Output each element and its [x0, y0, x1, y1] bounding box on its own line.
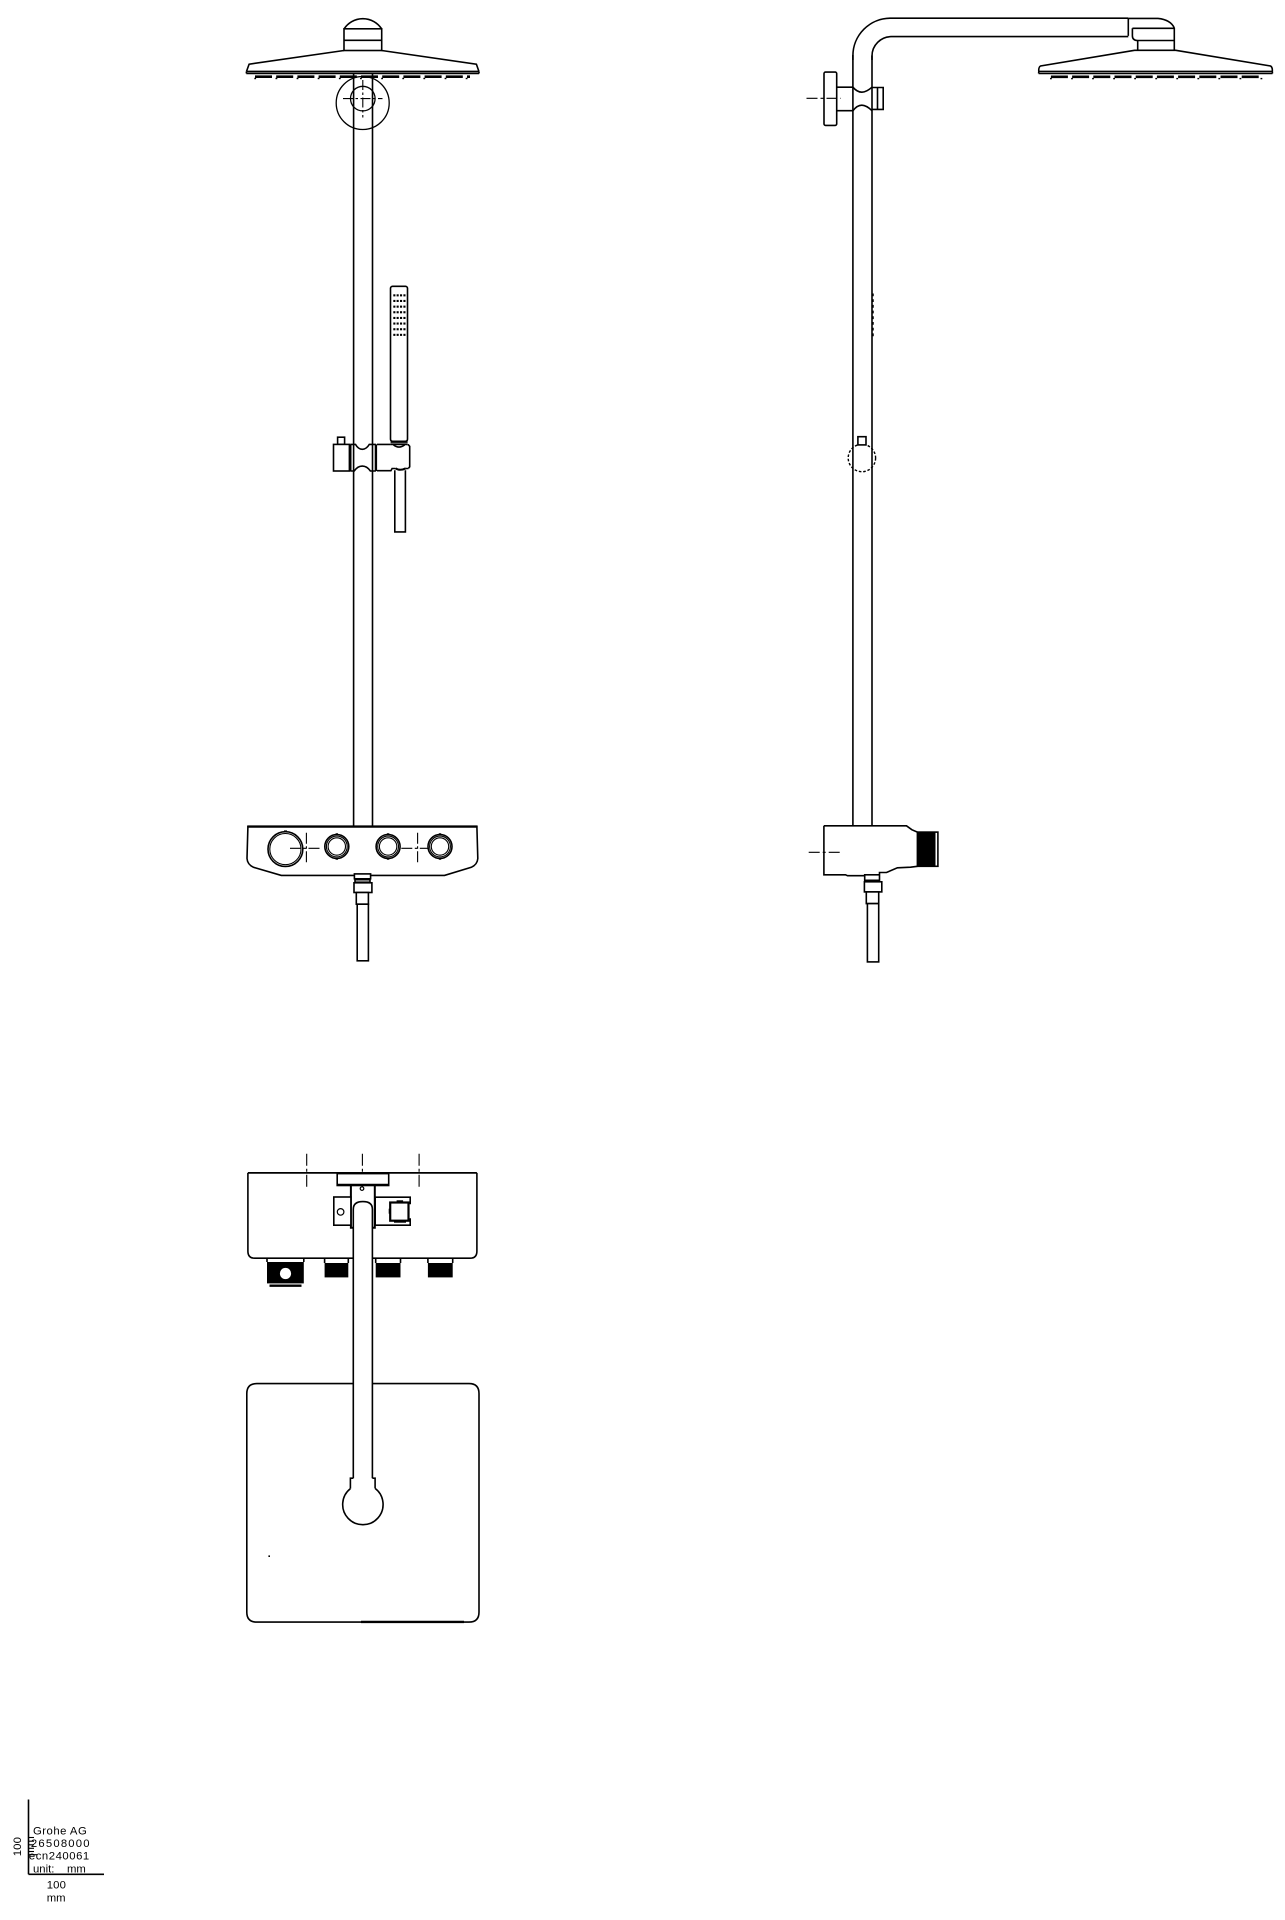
svg-text:unit:: unit: — [33, 1864, 54, 1876]
svg-text:ecn240061: ecn240061 — [29, 1851, 90, 1863]
svg-text:100: 100 — [12, 1837, 24, 1856]
svg-text:Grohe AG: Grohe AG — [33, 1826, 87, 1838]
svg-text:26508000: 26508000 — [31, 1838, 91, 1850]
svg-text:mm: mm — [67, 1864, 86, 1876]
svg-text:100: 100 — [47, 1879, 66, 1891]
svg-text:mm: mm — [47, 1893, 66, 1905]
